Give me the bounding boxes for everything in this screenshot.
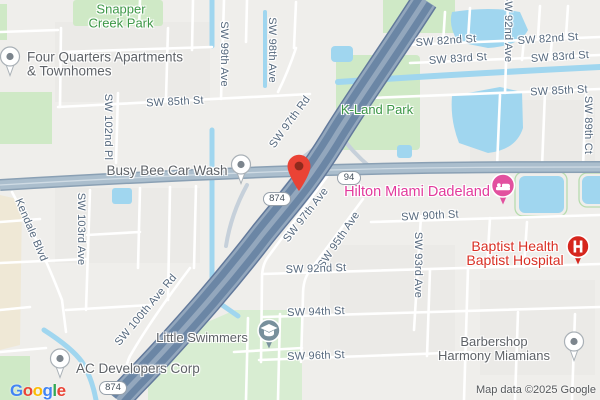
- street-label-sw-92nd-ave: SW 92nd Ave: [502, 0, 514, 62]
- route-shield-874-bottom: 874: [99, 381, 127, 395]
- street-label-sw-102nd-pl: SW 102nd Pl: [102, 94, 114, 160]
- graduation-cap-icon: [256, 319, 282, 351]
- pin-icon: [229, 154, 253, 186]
- pin-icon: [562, 331, 586, 363]
- poi-label-four-quarters[interactable]: Four Quarters Apartments & Townhomes: [27, 51, 183, 80]
- ac-developers-marker[interactable]: [48, 348, 72, 385]
- four-quarters-marker[interactable]: [0, 46, 22, 83]
- barbershop-marker[interactable]: [562, 331, 586, 368]
- bed-icon: [489, 173, 517, 207]
- logo-letter: G: [10, 381, 23, 400]
- map-canvas[interactable]: SW 82nd St SW 82nd St SW 83rd St SW 83rd…: [0, 0, 600, 400]
- baptist-line1: Baptist Health: [466, 239, 563, 253]
- baptist-line2: Baptist Hospital: [466, 253, 563, 267]
- education-marker[interactable]: [256, 319, 282, 356]
- street-label-sw-94th-st: SW 94th St: [287, 305, 345, 319]
- street-label-sw-89th-ct: SW 89th Ct: [582, 96, 594, 154]
- poi-label-baptist[interactable]: Baptist Health Baptist Hospital: [466, 239, 563, 267]
- hospital-h-icon: [565, 235, 591, 267]
- destination-pin[interactable]: [286, 153, 313, 197]
- route-shield-94: 94: [337, 171, 361, 185]
- google-logo[interactable]: Google: [10, 381, 66, 400]
- barbershop-line1: Barbershop: [438, 335, 550, 349]
- street-label-sw-98th-ave: SW 98th Ave: [266, 17, 278, 83]
- poi-label-snapper-creek-park[interactable]: Snapper Creek Park: [88, 2, 153, 29]
- snapper-line1: Snapper: [88, 2, 153, 16]
- snapper-line2: Creek Park: [88, 16, 153, 30]
- poi-label-busy-bee[interactable]: Busy Bee Car Wash: [106, 164, 227, 178]
- pin-icon: [48, 348, 72, 380]
- street-label-sw-93rd-ave: SW 93rd Ave: [412, 232, 424, 298]
- poi-label-ac-developers[interactable]: AC Developers Corp: [76, 362, 200, 376]
- map-attribution: Map data ©2025 Google: [476, 384, 596, 396]
- street-label-sw-92nd-st: SW 92nd St: [285, 262, 346, 276]
- logo-letter: o: [33, 381, 43, 400]
- poi-label-hilton[interactable]: Hilton Miami Dadeland: [344, 184, 490, 200]
- street-label-sw-96th-st: SW 96th St: [287, 349, 345, 363]
- four-quarters-line2: & Townhomes: [27, 65, 183, 79]
- pin-icon: [0, 46, 22, 78]
- hospital-marker[interactable]: [565, 235, 591, 272]
- logo-letter: e: [57, 381, 66, 400]
- street-label-sw-99th-ave: SW 99th Ave: [218, 21, 230, 87]
- hotel-marker[interactable]: [489, 173, 517, 212]
- logo-letter: o: [23, 381, 33, 400]
- poi-label-k-land-park[interactable]: K-Land Park: [341, 103, 413, 117]
- logo-letter: g: [43, 381, 53, 400]
- street-label-sw-103rd-ave: SW 103rd Ave: [75, 193, 87, 266]
- map-pin-icon: [286, 153, 313, 192]
- poi-label-little-swimmers[interactable]: Little Swimmers: [156, 331, 248, 345]
- barbershop-line2: Harmony Miamians: [438, 349, 550, 363]
- poi-label-barbershop[interactable]: Barbershop Harmony Miamians: [438, 335, 550, 363]
- busy-bee-marker[interactable]: [229, 154, 253, 191]
